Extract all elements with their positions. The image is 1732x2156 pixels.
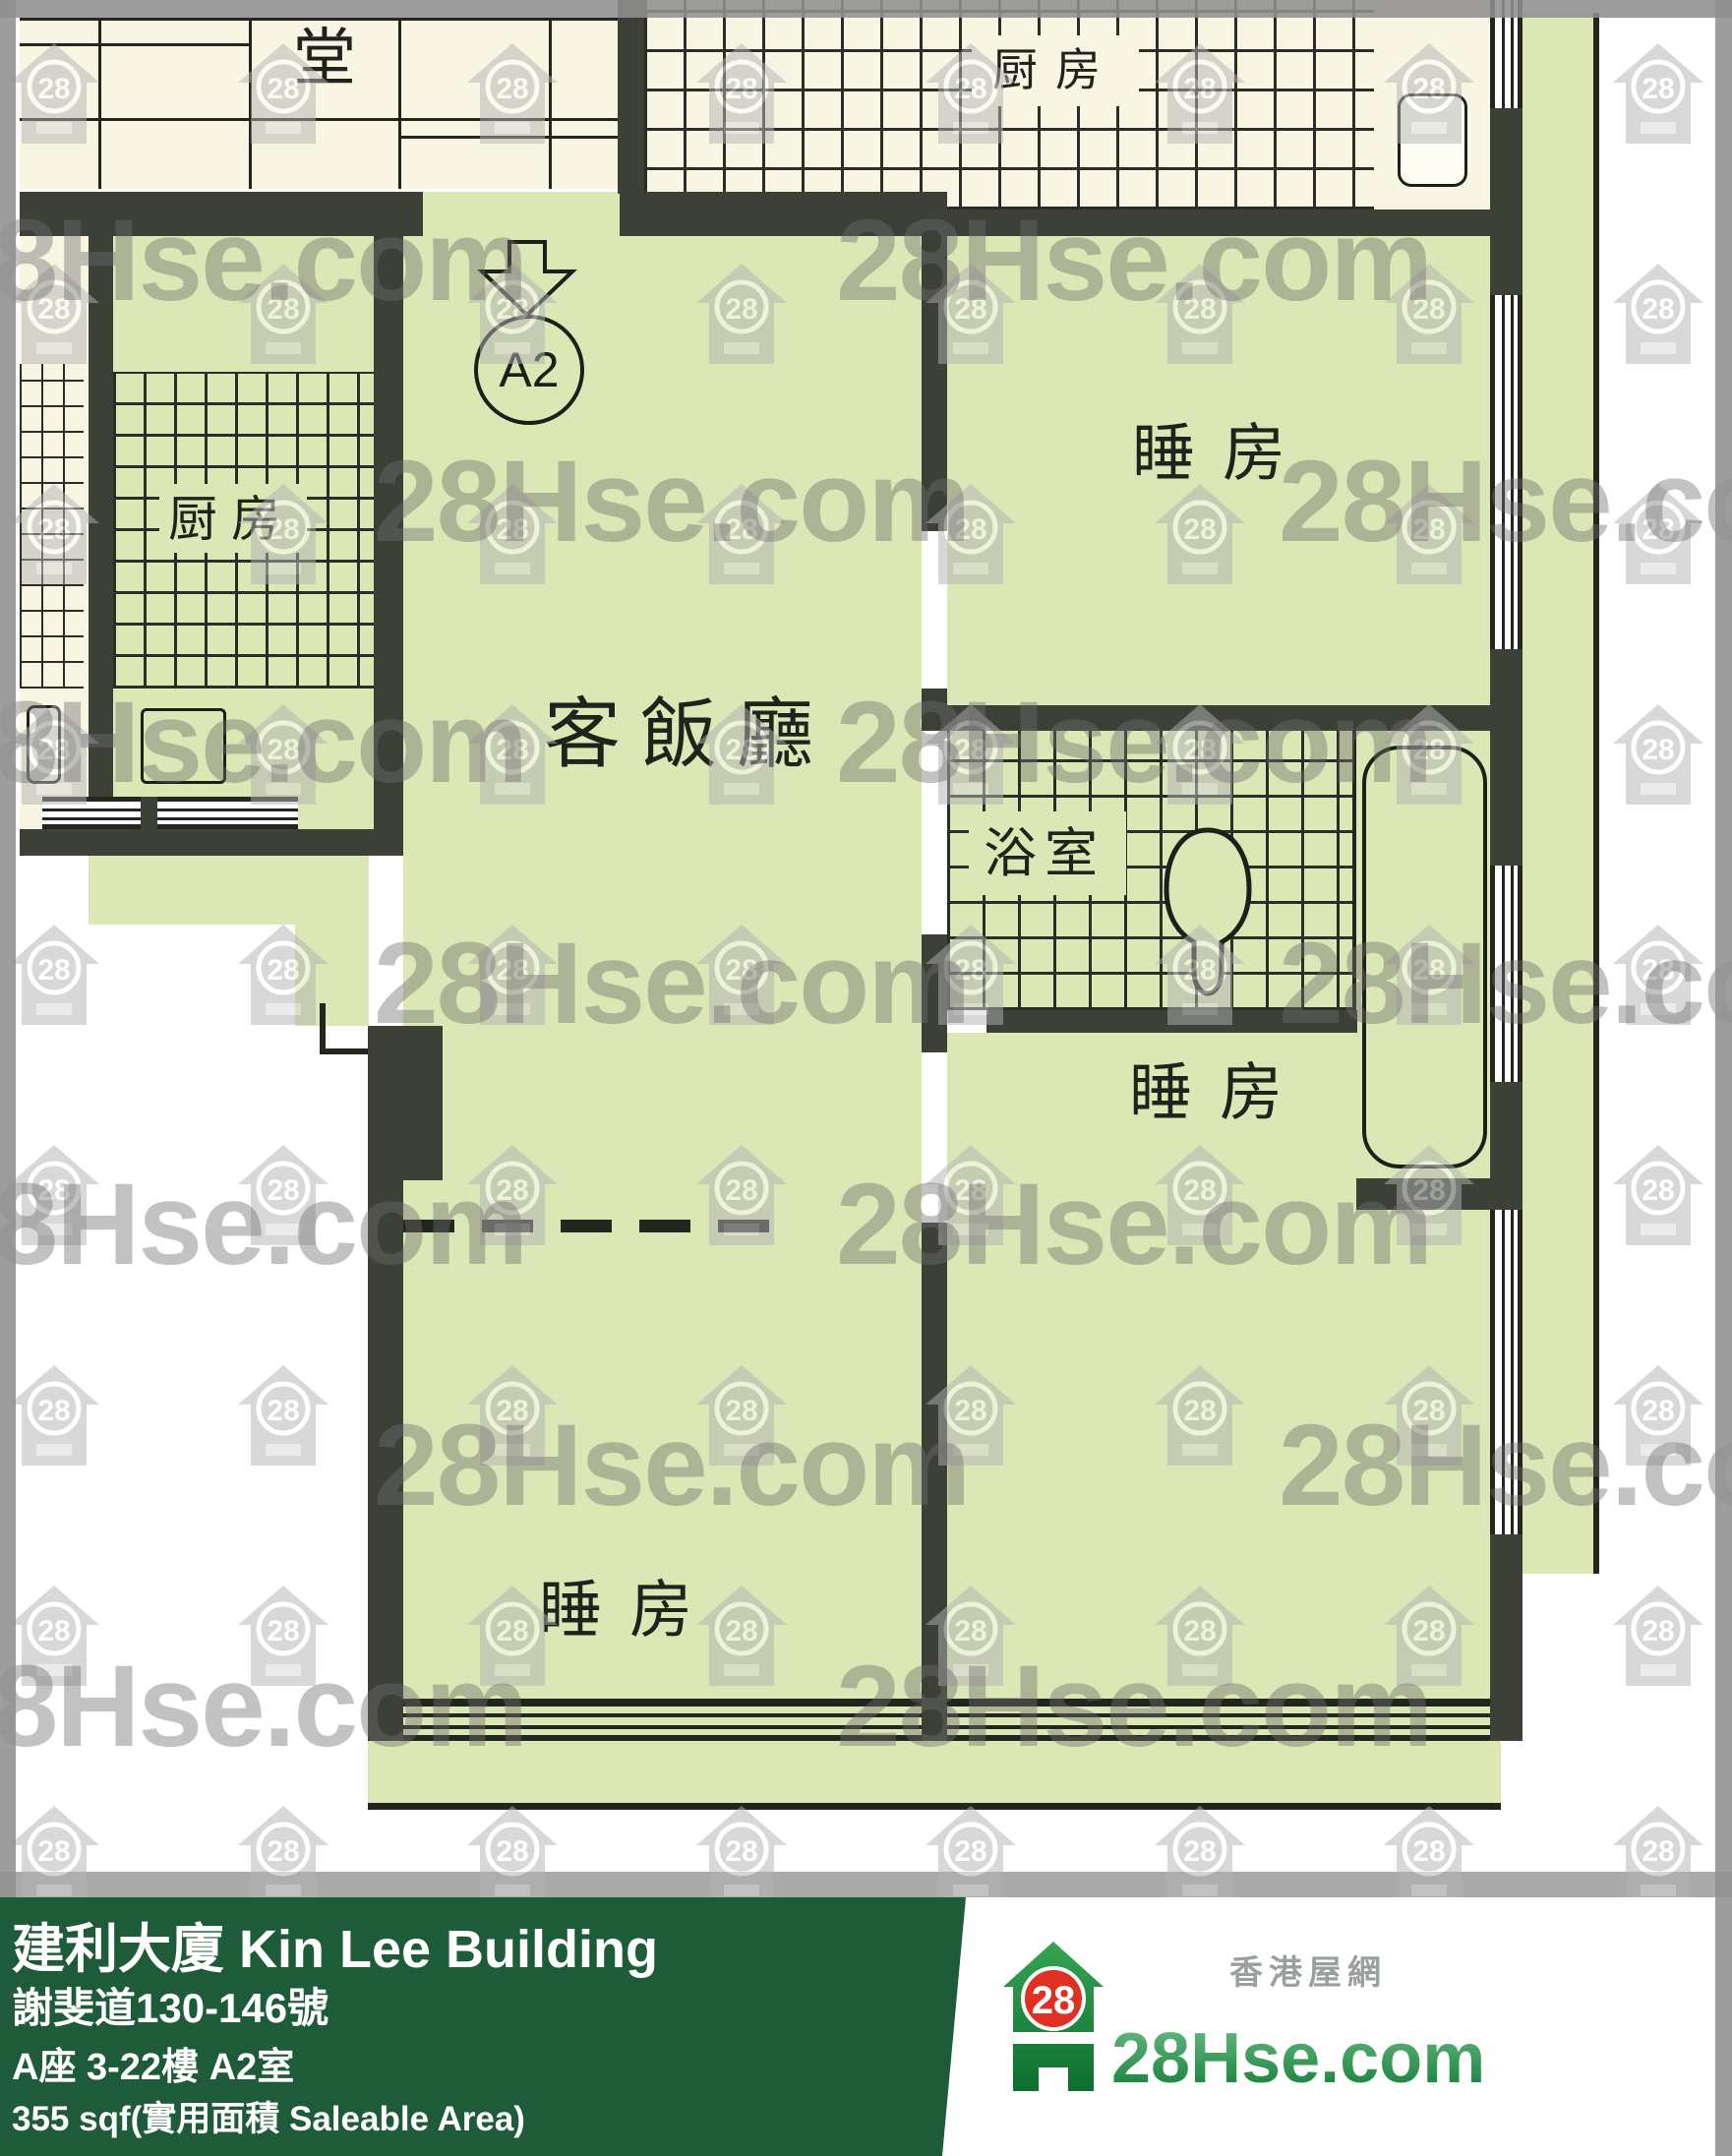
watermark-house-icon: 28 — [1155, 1365, 1245, 1466]
watermark-house-icon: 28 — [1613, 1145, 1703, 1245]
logo-tagline: 香港屋網 — [1229, 1946, 1387, 1994]
wall-right — [1490, 1534, 1523, 1741]
watermark-house-icon: 28 — [926, 43, 1016, 144]
watermark-house-icon: 28 — [238, 43, 328, 144]
building-title: 建利大廈 Kin Lee Building — [12, 1905, 658, 1983]
bedroom-bottom-left-label: 睡房 — [539, 1580, 720, 1643]
watermark-house-icon: 28 — [9, 43, 99, 144]
watermark-house-icon: 28 — [1155, 484, 1245, 584]
watermark-brand-text: 28Hse.com — [0, 1167, 526, 1283]
svg-text:28: 28 — [725, 1615, 757, 1647]
svg-text:28: 28 — [725, 73, 757, 105]
watermark-house-icon: 28 — [1155, 43, 1245, 144]
svg-text:28: 28 — [267, 1395, 299, 1427]
svg-text:28: 28 — [1183, 513, 1216, 546]
building-unit: A座 3-22樓 A2室 — [12, 2036, 294, 2090]
lightwell-strip — [89, 856, 369, 925]
watermark-house-icon: 28 — [467, 1806, 558, 1906]
svg-text:28: 28 — [1412, 73, 1445, 105]
wall-right — [1490, 1082, 1523, 1210]
wall-right — [1490, 649, 1523, 866]
watermark-house-icon: 28 — [696, 704, 787, 805]
svg-text:28: 28 — [1183, 1835, 1216, 1868]
watermark-brand-text: 28Hse.com — [374, 926, 969, 1042]
watermark-top-strip — [0, 0, 1732, 18]
watermark-house-icon: 28 — [9, 1365, 99, 1466]
watermark-right-strip — [1715, 0, 1732, 2156]
watermark-house-icon: 28 — [926, 1806, 1016, 1906]
wall-hall-kitchen-divider — [618, 0, 644, 194]
hall-grid-line — [398, 20, 401, 189]
watermark-house-icon: 28 — [696, 1586, 787, 1686]
watermark-house-icon: 28 — [1384, 1806, 1474, 1906]
watermark-house-icon: 28 — [696, 1806, 787, 1906]
boundary-step-line — [320, 1048, 374, 1054]
watermark-brand-text: 28Hse.com — [836, 1167, 1431, 1283]
svg-text:28: 28 — [1642, 1615, 1674, 1647]
watermark-brand-text: 28Hse.com — [374, 1407, 969, 1524]
watermark-house-icon: 28 — [238, 484, 328, 584]
right-outer-ledge — [1523, 13, 1593, 1574]
svg-text:28: 28 — [954, 1835, 986, 1868]
svg-text:28: 28 — [496, 1835, 528, 1868]
watermark-house-icon: 28 — [1384, 43, 1474, 144]
svg-text:28: 28 — [725, 1174, 757, 1207]
svg-text:28: 28 — [725, 1835, 757, 1868]
watermark-house-icon: 28 — [1155, 1806, 1245, 1906]
watermark-house-icon: 28 — [1613, 43, 1703, 144]
svg-text:28: 28 — [267, 73, 299, 105]
wall-left-pillar — [368, 1026, 443, 1180]
svg-text:28: 28 — [37, 954, 70, 987]
svg-text:28: 28 — [725, 734, 757, 766]
svg-text:28: 28 — [1642, 73, 1674, 105]
living-dining-label: 客飯廳 — [544, 696, 833, 773]
wall-right — [1490, 236, 1523, 295]
svg-text:28: 28 — [37, 1395, 70, 1427]
svg-text:28: 28 — [267, 954, 299, 987]
watermark-brand-text: 28Hse.com — [0, 1648, 526, 1765]
hall-top-line — [20, 18, 620, 21]
watermark-house-icon: 28 — [1613, 1806, 1703, 1906]
svg-text:28: 28 — [1642, 1174, 1674, 1207]
svg-text:28: 28 — [1183, 1395, 1216, 1427]
svg-text:28: 28 — [1183, 954, 1216, 987]
watermark-brand-text: 28Hse.com — [1279, 926, 1732, 1042]
svg-text:28: 28 — [37, 513, 70, 546]
svg-text:28: 28 — [1183, 73, 1216, 105]
svg-text:28: 28 — [725, 293, 757, 326]
watermark-house-icon: 28 — [9, 1806, 99, 1906]
wall-kitchen-bottom — [20, 829, 382, 856]
bedroom-bottom-right-label: 睡房 — [1129, 1062, 1310, 1125]
svg-text:28: 28 — [267, 513, 299, 546]
watermark-brand-text: 28Hse.com — [1279, 1407, 1732, 1524]
watermark-house-icon: 28 — [9, 484, 99, 584]
watermark-house-icon: 28 — [1613, 264, 1703, 364]
watermark-house-icon: 28 — [9, 925, 99, 1025]
building-area: 355 sqf(實用面積 Saleable Area) — [12, 2091, 525, 2141]
logo-brand: 28Hse.com — [1111, 2018, 1485, 2099]
watermark-brand-text: 28Hse.com — [0, 685, 526, 801]
watermark-brand-text: 28Hse.com — [374, 444, 969, 560]
watermark-brand-text: 28Hse.com — [836, 685, 1431, 801]
watermark-brand-text: 28Hse.com — [1279, 444, 1732, 560]
svg-text:28: 28 — [1412, 1835, 1445, 1868]
floorplan-page: 堂 厨房 — [0, 0, 1732, 2156]
watermark-brand-text: 28Hse.com — [0, 203, 526, 319]
watermark-house-icon: 28 — [1155, 925, 1245, 1025]
watermark-house-icon: 28 — [1613, 1586, 1703, 1686]
watermark-brand-text: 28Hse.com — [836, 203, 1431, 319]
watermark-brand-text: 28Hse.com — [836, 1648, 1431, 1765]
watermark-house-icon: 28 — [696, 43, 787, 144]
watermark-house-icon: 28 — [1613, 704, 1703, 805]
bathroom-label: 浴室 — [984, 827, 1105, 880]
watermark-house-icon: 28 — [696, 1145, 787, 1245]
svg-text:28: 28 — [496, 73, 528, 105]
watermark-house-icon: 28 — [238, 925, 328, 1025]
svg-text:28: 28 — [1642, 293, 1674, 326]
watermark-house-icon: 28 — [238, 1365, 328, 1466]
svg-text:28: 28 — [37, 1835, 70, 1868]
logo-house-icon: 28 — [999, 1938, 1107, 2105]
svg-text:28: 28 — [1642, 734, 1674, 766]
watermark-house-icon: 28 — [467, 43, 558, 144]
right-outer-line — [1593, 13, 1599, 1574]
svg-text:28: 28 — [267, 1835, 299, 1868]
watermark-house-icon: 28 — [696, 264, 787, 364]
svg-text:28: 28 — [1032, 1979, 1076, 2022]
svg-text:28: 28 — [954, 73, 986, 105]
svg-text:28: 28 — [37, 73, 70, 105]
building-address: 謝斐道130-146號 — [12, 1975, 328, 2035]
svg-text:28: 28 — [1642, 1835, 1674, 1868]
watermark-left-strip — [0, 0, 16, 1897]
watermark-house-icon: 28 — [238, 1806, 328, 1906]
